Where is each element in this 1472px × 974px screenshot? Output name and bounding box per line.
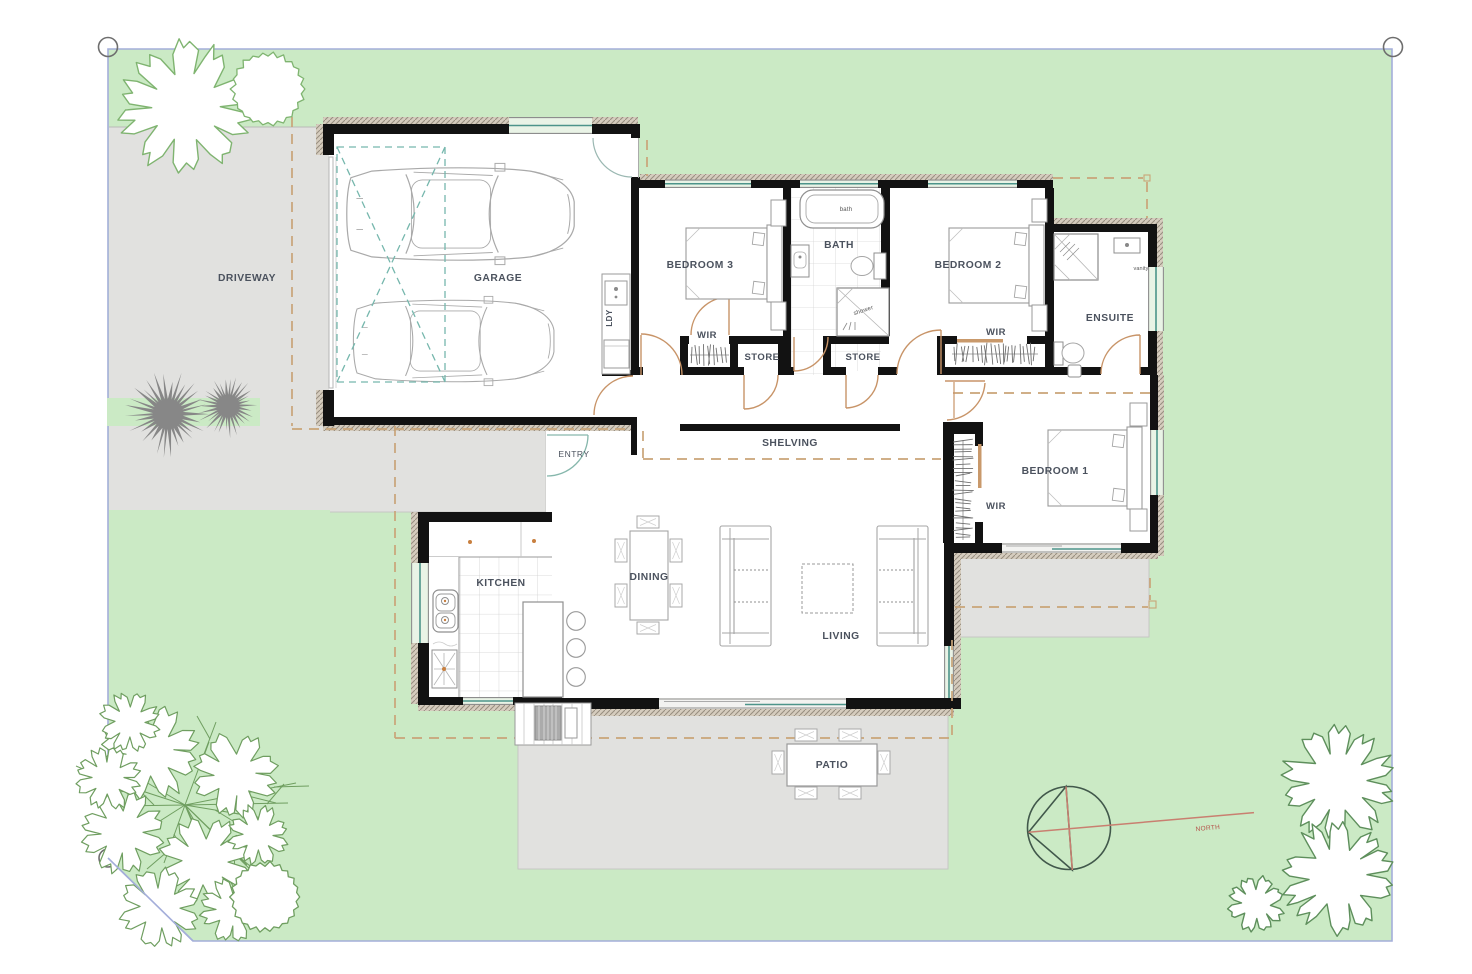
svg-text:STORE: STORE [845, 352, 880, 363]
svg-text:DINING: DINING [629, 572, 668, 583]
svg-text:GARAGE: GARAGE [474, 273, 522, 284]
svg-text:BEDROOM 2: BEDROOM 2 [935, 260, 1002, 271]
svg-text:STORE: STORE [744, 352, 779, 363]
svg-text:BEDROOM 3: BEDROOM 3 [667, 260, 734, 271]
svg-text:WIR: WIR [697, 330, 717, 341]
svg-text:LIVING: LIVING [822, 631, 859, 642]
svg-text:vanity: vanity [1134, 266, 1149, 272]
svg-text:WIR: WIR [986, 327, 1006, 338]
svg-text:BATH: BATH [824, 240, 854, 251]
svg-text:KITCHEN: KITCHEN [476, 578, 525, 589]
svg-text:PATIO: PATIO [816, 760, 848, 771]
svg-text:ENTRY: ENTRY [558, 449, 589, 459]
svg-text:LDY: LDY [605, 309, 614, 326]
svg-text:BEDROOM 1: BEDROOM 1 [1022, 466, 1089, 477]
svg-text:WIR: WIR [986, 501, 1006, 512]
svg-text:SHELVING: SHELVING [762, 438, 818, 449]
svg-text:ENSUITE: ENSUITE [1086, 313, 1134, 324]
svg-text:DRIVEWAY: DRIVEWAY [218, 273, 276, 284]
svg-text:bath: bath [840, 207, 852, 213]
